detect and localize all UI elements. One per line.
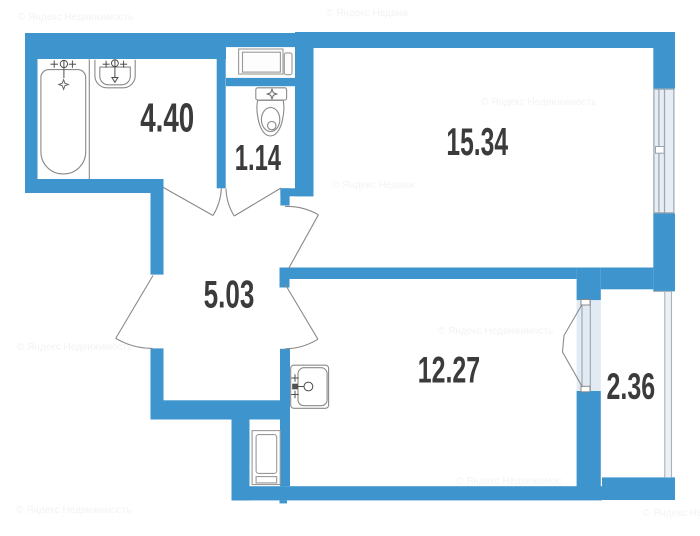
svg-text:4.40: 4.40 (140, 95, 194, 141)
svg-text:© Яндекс Недвижимость: © Яндекс Недвижимость (16, 505, 131, 516)
svg-text:1.14: 1.14 (235, 138, 281, 178)
svg-text:12.27: 12.27 (418, 348, 480, 390)
svg-text:© Яндекс Недвиж: © Яндекс Недвиж (332, 180, 415, 191)
svg-text:© Яндекс Недв: © Яндекс Недв (643, 508, 700, 519)
svg-text:15.34: 15.34 (446, 119, 508, 163)
svg-text:© Яндекс Недвижимость: © Яндекс Недвижимость (481, 97, 596, 108)
svg-text:© Яндекс Недвиж: © Яндекс Недвиж (326, 8, 409, 19)
svg-text:© Яндекс Недвижимость: © Яндекс Недвижимость (438, 326, 553, 337)
svg-text:2.36: 2.36 (607, 365, 656, 407)
svg-text:5.03: 5.03 (204, 273, 255, 316)
svg-text:© Яндекс Недвижимос: © Яндекс Недвижимос (456, 476, 562, 487)
svg-text:© Яндекс Недвижимость: © Яндекс Недвижимость (17, 342, 132, 353)
svg-text:© Яндекс Недвижимость: © Яндекс Недвижимость (18, 12, 133, 23)
